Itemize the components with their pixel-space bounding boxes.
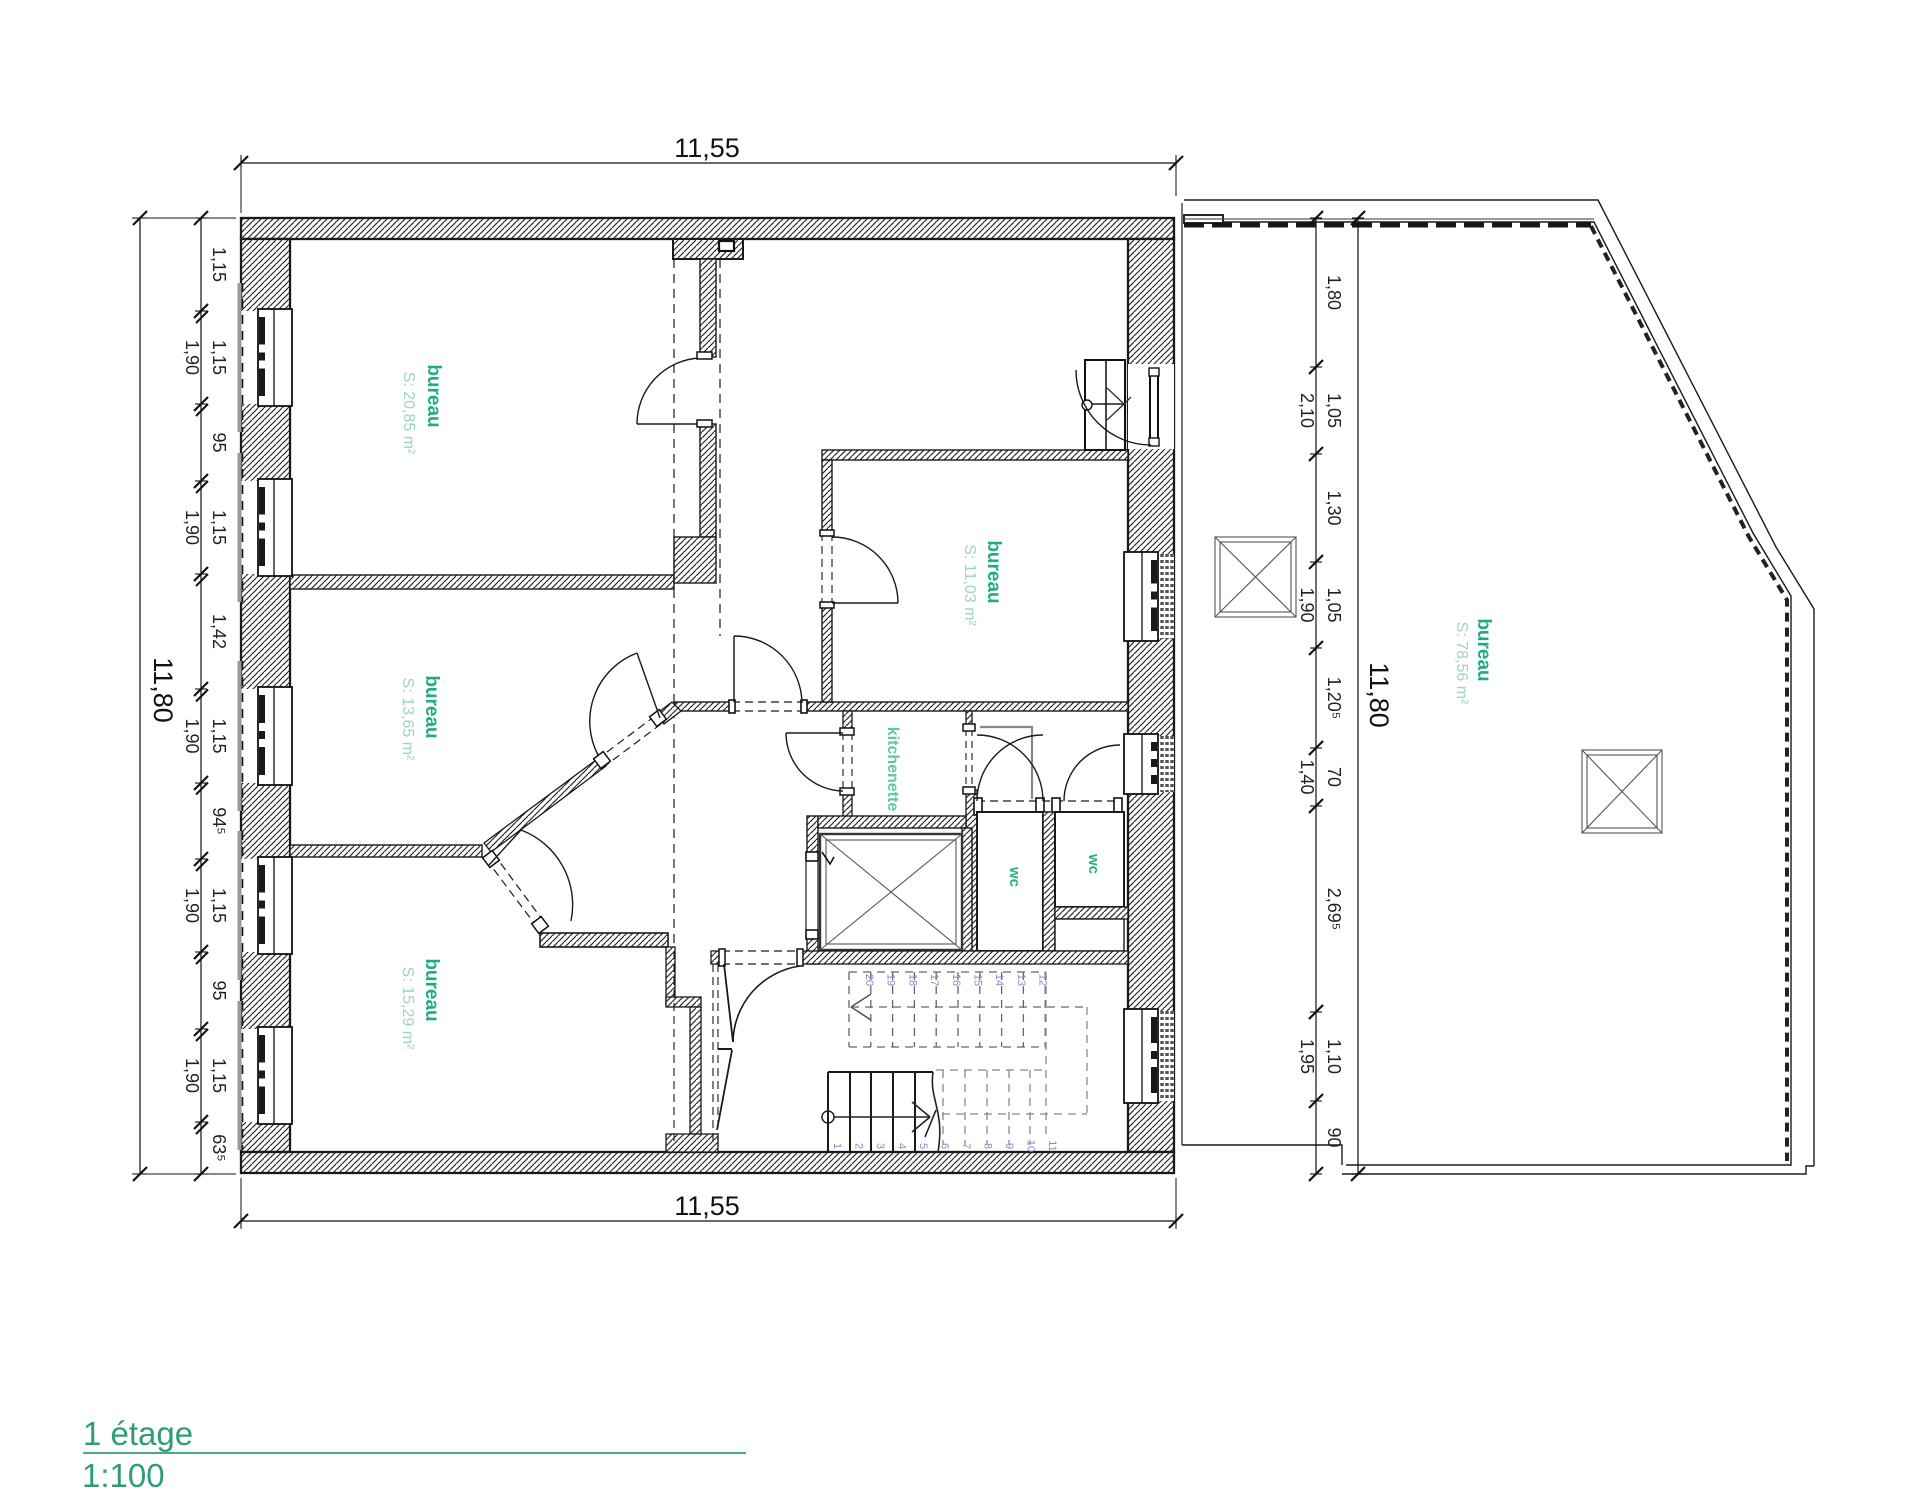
svg-text:2,69⁵: 2,69⁵ [1324, 888, 1344, 931]
svg-text:bureau: bureau [983, 540, 1004, 603]
svg-text:9: 9 [1003, 1143, 1015, 1149]
svg-text:11,55: 11,55 [674, 133, 740, 163]
svg-text:kitchenette: kitchenette [884, 727, 901, 812]
svg-text:63⁵: 63⁵ [209, 1134, 229, 1161]
svg-text:1:100: 1:100 [82, 1457, 165, 1494]
svg-text:S: 78,56 m²: S: 78,56 m² [1453, 622, 1470, 705]
svg-text:1,15: 1,15 [209, 718, 229, 753]
svg-text:1 étage: 1 étage [83, 1415, 193, 1452]
svg-text:4: 4 [896, 1143, 908, 1149]
svg-text:1,90: 1,90 [1297, 587, 1317, 622]
svg-text:3: 3 [874, 1143, 886, 1149]
svg-text:1,15: 1,15 [209, 1058, 229, 1093]
svg-text:1,90: 1,90 [182, 888, 202, 923]
svg-text:95: 95 [209, 980, 229, 1000]
svg-text:S: 13,65 m²: S: 13,65 m² [399, 678, 416, 761]
svg-text:1,40: 1,40 [1297, 759, 1317, 794]
svg-text:2: 2 [853, 1143, 865, 1149]
svg-text:6: 6 [939, 1143, 951, 1149]
svg-text:1,30: 1,30 [1324, 490, 1344, 525]
svg-text:7: 7 [960, 1143, 972, 1149]
svg-text:20: 20 [863, 974, 875, 986]
svg-text:bureau: bureau [1473, 618, 1494, 681]
svg-text:1,15: 1,15 [209, 340, 229, 375]
svg-text:11: 11 [1046, 1140, 1058, 1151]
svg-text:17: 17 [928, 974, 940, 986]
svg-text:10: 10 [1025, 1140, 1037, 1152]
svg-text:1: 1 [831, 1143, 843, 1149]
svg-text:S: 15,29 m²: S: 15,29 m² [399, 967, 416, 1050]
svg-text:1,20⁵: 1,20⁵ [1324, 677, 1344, 720]
svg-text:12: 12 [1037, 974, 1049, 986]
svg-text:19: 19 [885, 974, 897, 986]
svg-text:14: 14 [993, 974, 1005, 986]
svg-text:18: 18 [906, 974, 918, 986]
svg-text:11,80: 11,80 [1364, 662, 1394, 728]
svg-text:11,55: 11,55 [674, 1191, 740, 1221]
svg-text:15: 15 [972, 974, 984, 986]
svg-text:95: 95 [209, 432, 229, 452]
svg-text:5: 5 [917, 1143, 929, 1149]
svg-text:S: 11,03 m²: S: 11,03 m² [961, 544, 978, 626]
svg-text:bureau: bureau [421, 675, 442, 738]
svg-text:2,10: 2,10 [1297, 393, 1317, 428]
svg-text:1,05: 1,05 [1324, 587, 1344, 622]
svg-text:1,05: 1,05 [1324, 393, 1344, 428]
svg-text:16: 16 [950, 974, 962, 986]
svg-text:90: 90 [1324, 1127, 1344, 1147]
svg-text:1,90: 1,90 [182, 340, 202, 375]
svg-text:8: 8 [982, 1143, 994, 1149]
svg-text:bureau: bureau [421, 958, 442, 1021]
svg-text:1,80: 1,80 [1324, 275, 1344, 310]
svg-text:94⁵: 94⁵ [209, 807, 229, 834]
svg-text:1,90: 1,90 [182, 718, 202, 753]
svg-text:1,10: 1,10 [1324, 1039, 1344, 1074]
svg-text:1,95: 1,95 [1297, 1039, 1317, 1074]
svg-text:wc: wc [1085, 853, 1102, 874]
svg-text:wc: wc [1006, 866, 1023, 887]
svg-text:1,90: 1,90 [182, 510, 202, 545]
svg-text:S: 20,85 m²: S: 20,85 m² [400, 372, 417, 455]
svg-text:1,15: 1,15 [209, 888, 229, 923]
svg-text:1,15: 1,15 [209, 510, 229, 545]
svg-text:bureau: bureau [423, 364, 444, 427]
svg-text:11,80: 11,80 [148, 657, 178, 723]
svg-text:1,15: 1,15 [209, 247, 229, 282]
svg-text:70: 70 [1324, 767, 1344, 787]
svg-text:13: 13 [1015, 974, 1027, 986]
svg-text:1,90: 1,90 [182, 1058, 202, 1093]
svg-text:1,42: 1,42 [209, 614, 229, 649]
